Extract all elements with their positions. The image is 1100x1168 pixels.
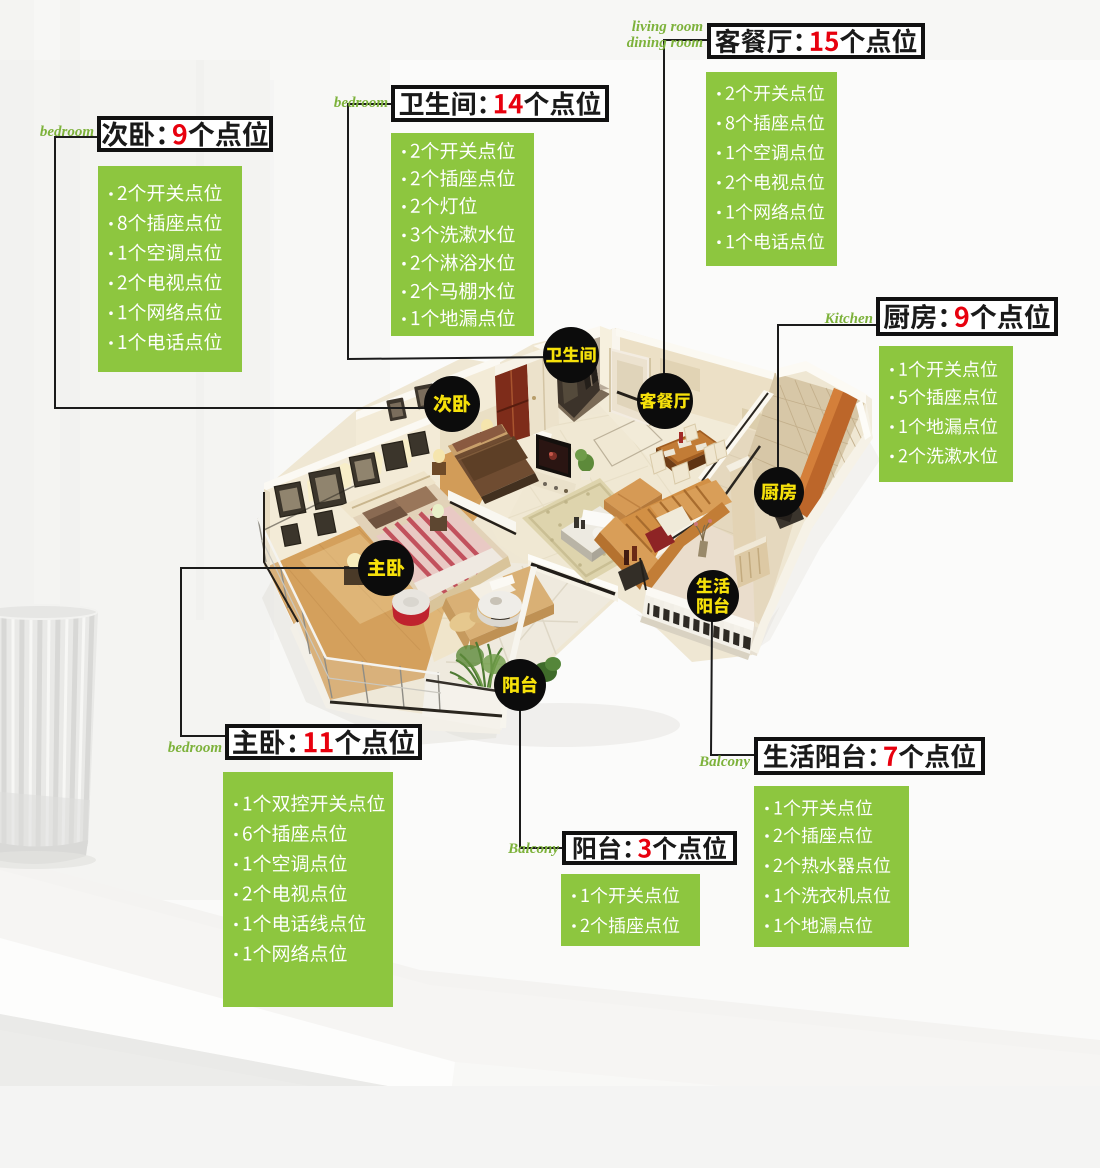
svg-text:bedroom: bedroom [40, 124, 94, 140]
svg-text:Balcony: Balcony [698, 754, 750, 770]
svg-text:Balcony: Balcony [507, 841, 559, 857]
svg-text:living room: living room [632, 19, 703, 35]
svg-text:bedroom: bedroom [334, 95, 388, 111]
svg-text:Kitchen: Kitchen [824, 311, 873, 327]
svg-text:dining room: dining room [627, 35, 703, 51]
svg-text:bedroom: bedroom [168, 740, 222, 756]
